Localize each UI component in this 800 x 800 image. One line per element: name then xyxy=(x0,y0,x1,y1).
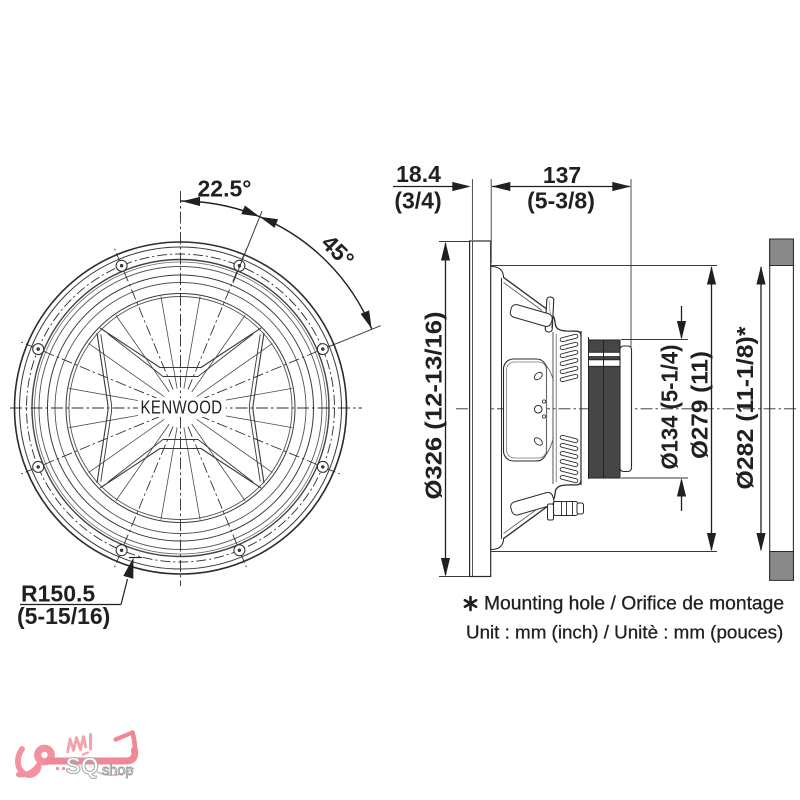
svg-text:18.4: 18.4 xyxy=(396,161,441,187)
svg-text:137: 137 xyxy=(543,162,581,188)
svg-text:(3/4): (3/4) xyxy=(394,188,441,214)
svg-text:(5-3/8): (5-3/8) xyxy=(527,188,595,214)
svg-text:Ø282 (11-1/8)*: Ø282 (11-1/8)* xyxy=(732,326,758,489)
svg-text:SQ: SQ xyxy=(66,753,99,779)
svg-text:Ø279 (11): Ø279 (11) xyxy=(687,351,713,459)
svg-text:Mounting hole / Orifice de mon: Mounting hole / Orifice de montage xyxy=(484,594,784,615)
svg-text:(5-15/16): (5-15/16) xyxy=(17,603,110,629)
svg-text:Unit : mm (inch) / Unitè : mm: Unit : mm (inch) / Unitè : mm (pouces) xyxy=(466,622,783,643)
svg-text:shop: shop xyxy=(102,763,133,779)
svg-text:Ø326 (12-13/16): Ø326 (12-13/16) xyxy=(421,312,447,500)
svg-text:KENWOOD: KENWOOD xyxy=(141,397,223,418)
svg-text:Ø134 (5-1/4): Ø134 (5-1/4) xyxy=(657,345,683,470)
svg-text:22.5°: 22.5° xyxy=(198,176,252,202)
